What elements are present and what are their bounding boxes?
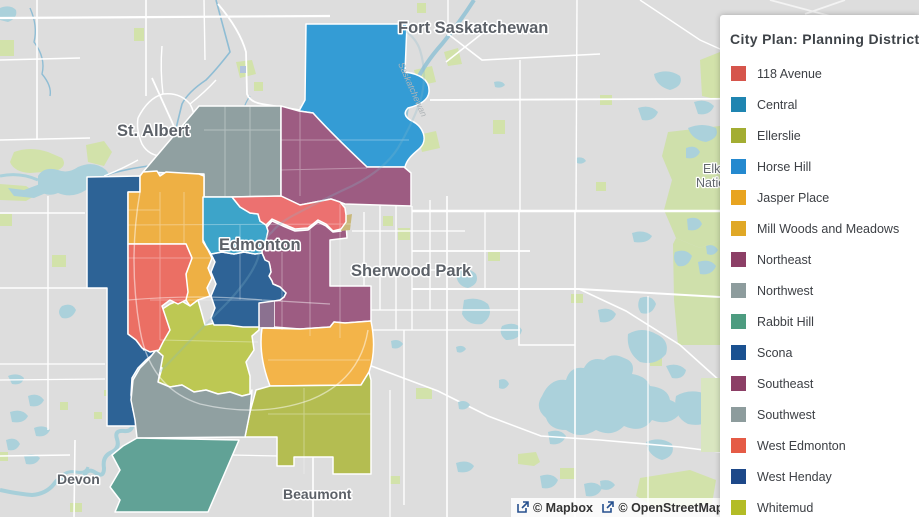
svg-text:Devon: Devon	[57, 471, 100, 487]
svg-text:Fort Saskatchewan: Fort Saskatchewan	[398, 19, 548, 37]
svg-text:Beaumont: Beaumont	[283, 486, 352, 502]
svg-text:Sherwood Park: Sherwood Park	[351, 262, 472, 280]
svg-text:Edmonton: Edmonton	[219, 236, 301, 254]
svg-text:St. Albert: St. Albert	[117, 122, 190, 140]
